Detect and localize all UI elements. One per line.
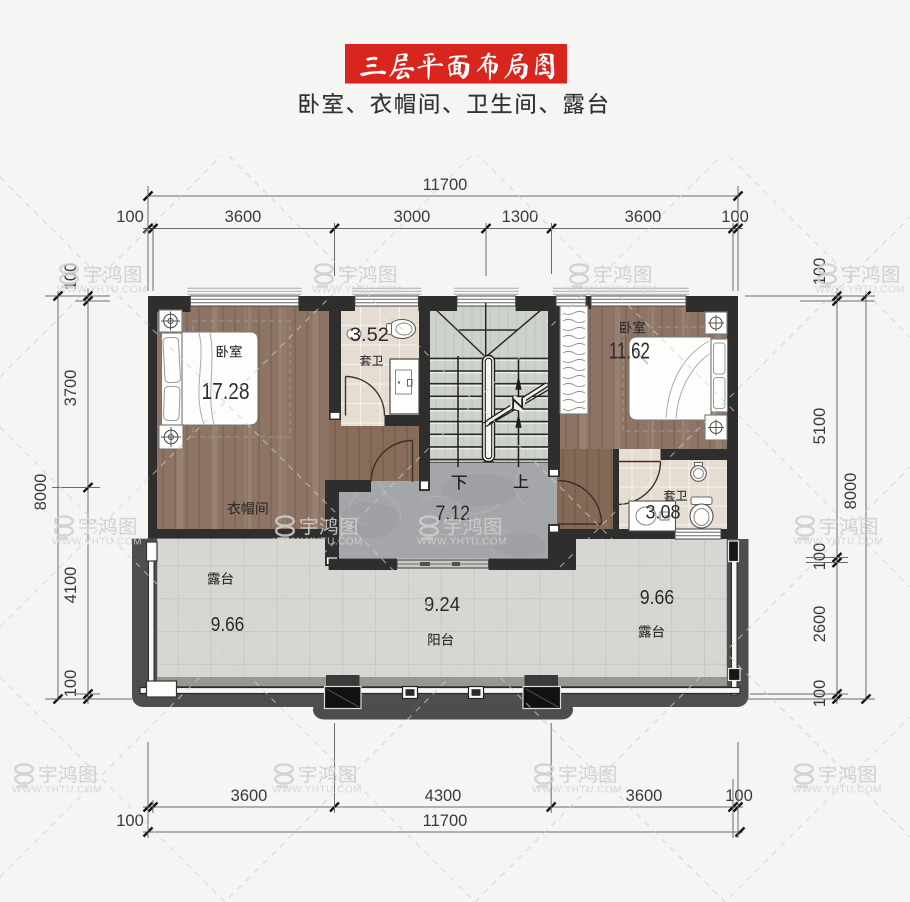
- svg-text:3600: 3600: [625, 208, 662, 226]
- svg-text:8000: 8000: [842, 473, 860, 510]
- svg-text:3.52: 3.52: [350, 324, 389, 346]
- svg-text:9.66: 9.66: [640, 587, 675, 609]
- svg-text:7.12: 7.12: [436, 502, 471, 525]
- svg-text:100: 100: [116, 812, 144, 830]
- svg-text:4100: 4100: [62, 567, 80, 604]
- svg-text:9.24: 9.24: [424, 594, 460, 616]
- svg-text:100: 100: [721, 208, 749, 226]
- svg-text:8000: 8000: [32, 474, 50, 511]
- svg-text:9.66: 9.66: [211, 614, 245, 636]
- svg-text:17.28: 17.28: [202, 378, 250, 404]
- svg-text:3000: 3000: [394, 208, 431, 226]
- svg-text:11700: 11700: [423, 176, 468, 194]
- svg-text:3600: 3600: [225, 208, 262, 226]
- svg-text:11700: 11700: [423, 812, 468, 830]
- svg-text:3.08: 3.08: [646, 502, 681, 524]
- svg-text:100: 100: [725, 787, 753, 805]
- svg-text:1300: 1300: [502, 208, 539, 226]
- svg-text:3600: 3600: [231, 787, 268, 805]
- svg-text:5100: 5100: [811, 408, 829, 445]
- svg-text:100: 100: [116, 208, 144, 226]
- svg-text:11.62: 11.62: [609, 338, 650, 364]
- svg-text:100: 100: [62, 670, 80, 698]
- svg-text:2600: 2600: [811, 606, 829, 643]
- svg-text:3600: 3600: [626, 787, 663, 805]
- svg-text:3700: 3700: [62, 370, 80, 407]
- svg-text:4300: 4300: [425, 787, 462, 805]
